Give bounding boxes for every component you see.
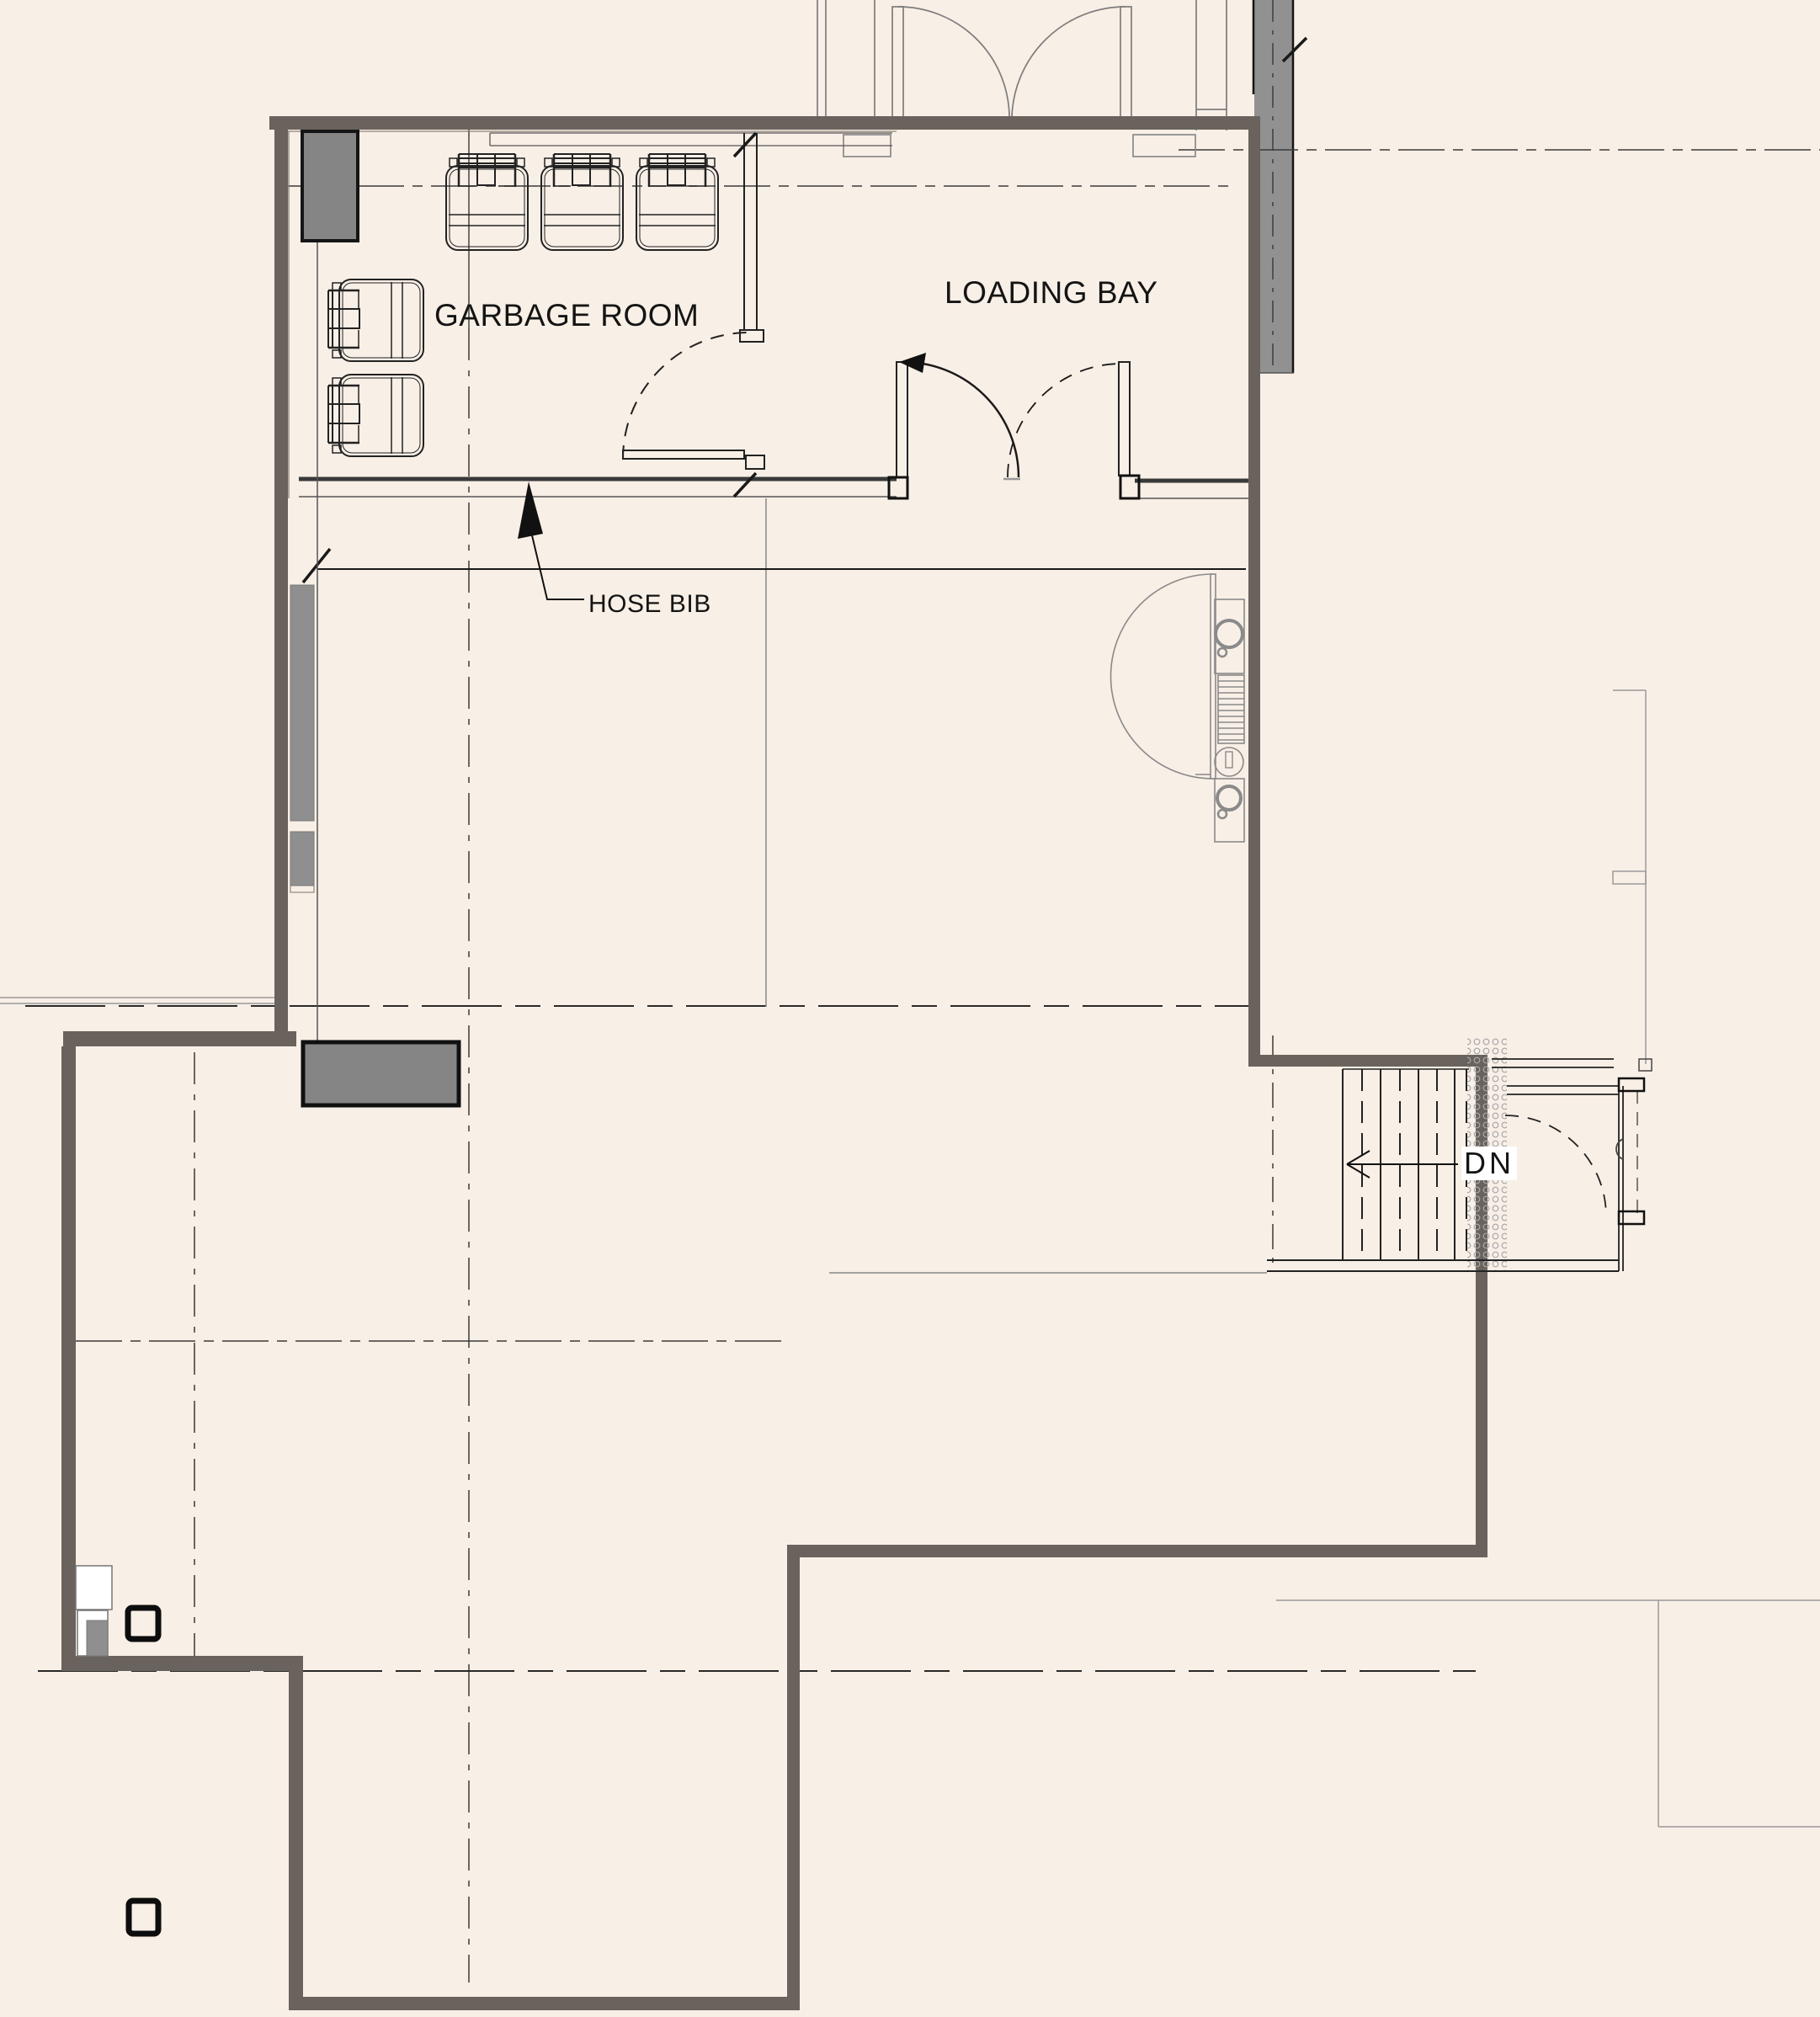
stairs: [1267, 1036, 1619, 1271]
wall-stair-top: [1248, 1055, 1487, 1067]
louver-grille: [1218, 675, 1244, 743]
shaft-top-left: [302, 131, 358, 241]
door-leaf-right: [1119, 362, 1130, 476]
garbage-bins-left-column: [328, 279, 423, 456]
lower-left-fixtures: [76, 1566, 158, 1934]
door-swing-arc-dashed: [1008, 364, 1121, 477]
wall-bottom: [289, 1997, 800, 2010]
door-swing-arrowhead: [899, 353, 926, 373]
door-leaf: [623, 450, 744, 459]
garbage-bins-top-row: [446, 154, 718, 250]
room-label-garbage-room: GARBAGE ROOM: [434, 298, 699, 333]
wall-panel: [76, 1566, 112, 1610]
stair-direction-label: DN: [1461, 1147, 1517, 1180]
structural-walls: [61, 116, 1487, 2010]
garbage-bin: [446, 154, 528, 250]
garbage-bin: [541, 154, 623, 250]
door-swing-arc: [1012, 7, 1126, 118]
door-hinge: [746, 455, 764, 469]
hose-reel-icon: [1217, 786, 1241, 810]
door-swing-arc: [898, 7, 1009, 118]
door-leaf-left: [892, 7, 903, 118]
wall-lowerleft-top: [63, 1031, 296, 1046]
column-marker: [128, 1608, 158, 1639]
left-wall-lining: [290, 242, 317, 1044]
wall-lower-horizontal: [787, 1545, 1487, 1557]
garbage-bin: [636, 154, 718, 250]
wall-top: [269, 116, 1260, 130]
shaft-blocks: [302, 131, 459, 1105]
garbage-room-south-wall: [299, 479, 1248, 498]
door-swing-arc-solid: [903, 362, 1019, 477]
wall-step-horizontal: [61, 1656, 303, 1671]
partition-end-cap: [740, 330, 764, 342]
wall-left-lower: [61, 1046, 76, 1671]
door-swing-arc-dashed: [623, 333, 749, 459]
panel-gray-cell: [87, 1621, 108, 1656]
hose-reel-icon: [1216, 620, 1243, 647]
column-marker: [129, 1901, 158, 1934]
leader-line: [532, 535, 584, 599]
leader-arrowhead: [518, 482, 543, 539]
door-swing-arc-dashed: [1505, 1115, 1606, 1216]
room-label-loading-bay: LOADING BAY: [945, 275, 1158, 311]
loading-bay-doors: [889, 353, 1139, 498]
door-swing-semicircle: [1111, 574, 1214, 779]
wall-mid-vertical: [787, 1545, 800, 2010]
context-lines: [0, 498, 1820, 1827]
shaft-mid-left: [303, 1042, 459, 1105]
wall-step-vertical: [289, 1671, 303, 2010]
equipment-box: [1215, 599, 1244, 673]
door-leaf-right: [1120, 7, 1131, 118]
garbage-bin: [328, 279, 423, 361]
wall-right: [1248, 116, 1260, 1061]
wall-left-upper: [274, 116, 288, 1033]
annotation-hose-bib: HOSE BIB: [588, 590, 711, 619]
service-door-and-equipment: [1111, 574, 1245, 842]
hose-bib-leader: [518, 482, 584, 599]
door-stop-arc: [1616, 1139, 1623, 1159]
floor-plan-canvas: [0, 0, 1820, 2017]
door-leaf-left: [897, 362, 907, 477]
garbage-bin: [328, 375, 423, 456]
